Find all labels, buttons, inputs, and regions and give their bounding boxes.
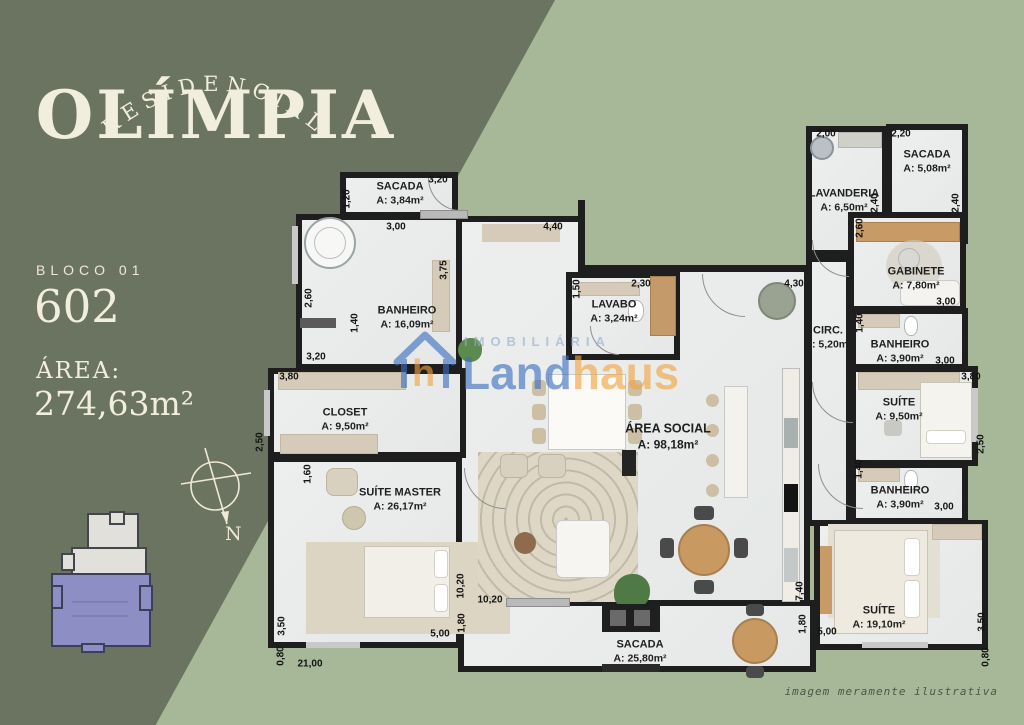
dimension-label: 7,40 [795, 581, 806, 600]
room-label-gabinete: GABINETEA: 7,80m² [888, 266, 945, 293]
landhaus-house-icon: h [392, 326, 458, 392]
dimension-label: 2,50 [255, 432, 266, 451]
dimension-label: 1,50 [572, 279, 583, 298]
dimension-label: 4,30 [784, 279, 803, 290]
disclaimer-text: imagem meramente ilustrativa [748, 685, 998, 698]
dimension-label: 3,20 [306, 352, 325, 363]
dimension-label: 1,20 [342, 189, 353, 208]
dimension-label: 1,80 [457, 613, 468, 632]
room-label-sacada-servico: SACADAA: 5,08m² [903, 149, 950, 176]
dimension-label: 3,80 [279, 372, 298, 383]
dimension-label: 3,00 [386, 222, 405, 233]
room-label-sacada-superior: SACADAA: 3,84m² [376, 181, 423, 208]
dimension-label: 2,40 [951, 193, 962, 212]
dimension-label: 21,00 [297, 659, 322, 670]
dimension-label: 5,00 [430, 629, 449, 640]
dimension-label: 3,50 [277, 616, 288, 635]
room-label-suite-2: SUÍTEA: 19,10m² [852, 605, 905, 632]
dimension-label: 3,00 [935, 356, 954, 367]
dimension-label: 5,00 [817, 627, 836, 638]
dimension-label: 3,50 [977, 612, 988, 631]
watermark-logo: Landhaus [462, 346, 679, 400]
dimension-label: 10,20 [456, 573, 467, 598]
dimension-label: 3,80 [961, 372, 980, 383]
dimension-label: 2,30 [631, 279, 650, 290]
dimension-label: 1,40 [854, 459, 865, 478]
room-label-sacada-inferior: SACADAA: 25,80m² [613, 639, 666, 666]
room-label-circulacao: CIRC.A: 5,20m² [804, 325, 851, 352]
room-label-suite-1: SUÍTEA: 9,50m² [875, 397, 922, 424]
dimension-label: 0,80 [276, 646, 287, 665]
svg-text:h: h [412, 353, 435, 392]
floorplan-poster: RESIDENCIAL OLÍMPIA BLOCO 01 602 ÁREA: 2… [0, 0, 1024, 725]
room-label-banheiro-suite-1: BANHEIROA: 3,90m² [871, 339, 930, 366]
dimension-label: 2,60 [855, 218, 866, 237]
room-label-lavabo: LAVABOA: 3,24m² [590, 299, 637, 326]
dimension-label: 2,20 [891, 129, 910, 140]
dimension-label: 1,60 [303, 464, 314, 483]
dimension-label: 1,40 [855, 313, 866, 332]
dimension-label: 1,80 [798, 614, 809, 633]
dimension-label: 2,40 [870, 193, 881, 212]
dimension-label: 2,50 [976, 434, 987, 453]
entry-hall-notch [578, 200, 806, 272]
dimension-label: 10,20 [477, 595, 502, 606]
dimension-label: 3,00 [934, 502, 953, 513]
dimension-label: 4,40 [543, 222, 562, 233]
room-label-suite-master: SUÍTE MASTERA: 26,17m² [359, 487, 441, 514]
dimension-label: 0,80 [981, 647, 992, 666]
dimension-label: 1,40 [350, 313, 361, 332]
dimension-label: 3,75 [439, 260, 450, 279]
dimension-label: 3,20 [428, 175, 447, 186]
dimension-label: 2,00 [816, 129, 835, 140]
room-label-area-social: ÁREA SOCIALA: 98,18m² [625, 422, 711, 453]
room-label-closet: CLOSETA: 9,50m² [321, 407, 368, 434]
realtor-watermark: h IMOBILIÁRIA Landhaus [392, 326, 692, 410]
room-label-banheiro-suite-2: BANHEIROA: 3,90m² [871, 485, 930, 512]
dimension-label: 3,00 [936, 297, 955, 308]
dimension-label: 2,60 [304, 288, 315, 307]
